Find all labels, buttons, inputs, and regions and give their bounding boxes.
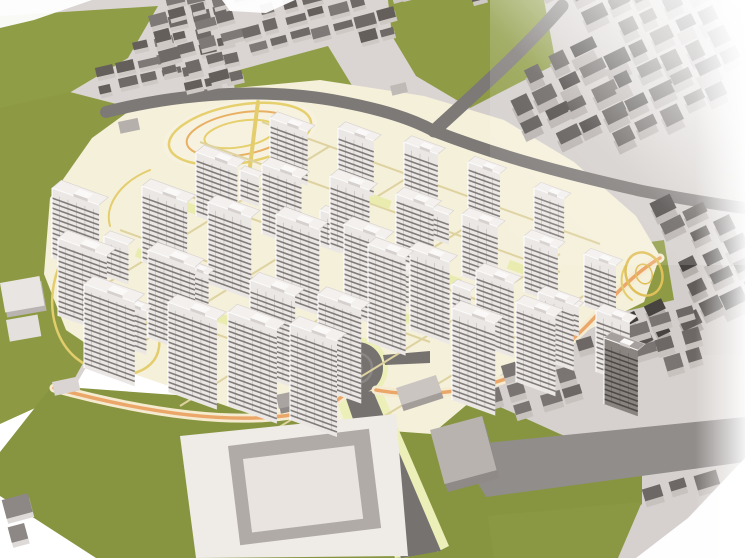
masterplan-render-stage — [0, 0, 745, 558]
masterplan-3d-render — [0, 0, 745, 558]
compound-courtyard — [243, 445, 363, 532]
